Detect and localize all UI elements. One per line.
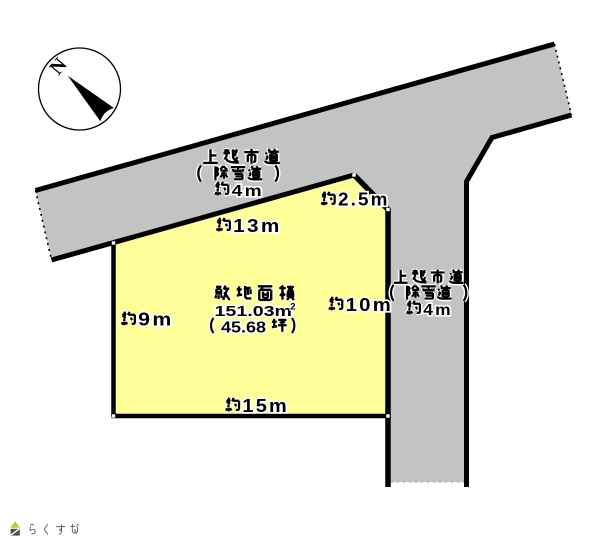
svg-text:4m: 4m [232,183,265,200]
svg-text:9m: 9m [138,310,174,330]
svg-text:10m: 10m [346,295,394,315]
svg-text:13m: 13m [233,216,282,236]
svg-text:15m: 15m [242,396,289,416]
svg-text:4m: 4m [423,302,453,319]
svg-text:2.5m: 2.5m [338,190,390,210]
svg-text:45.68: 45.68 [221,319,266,336]
svg-text:2: 2 [290,301,295,312]
